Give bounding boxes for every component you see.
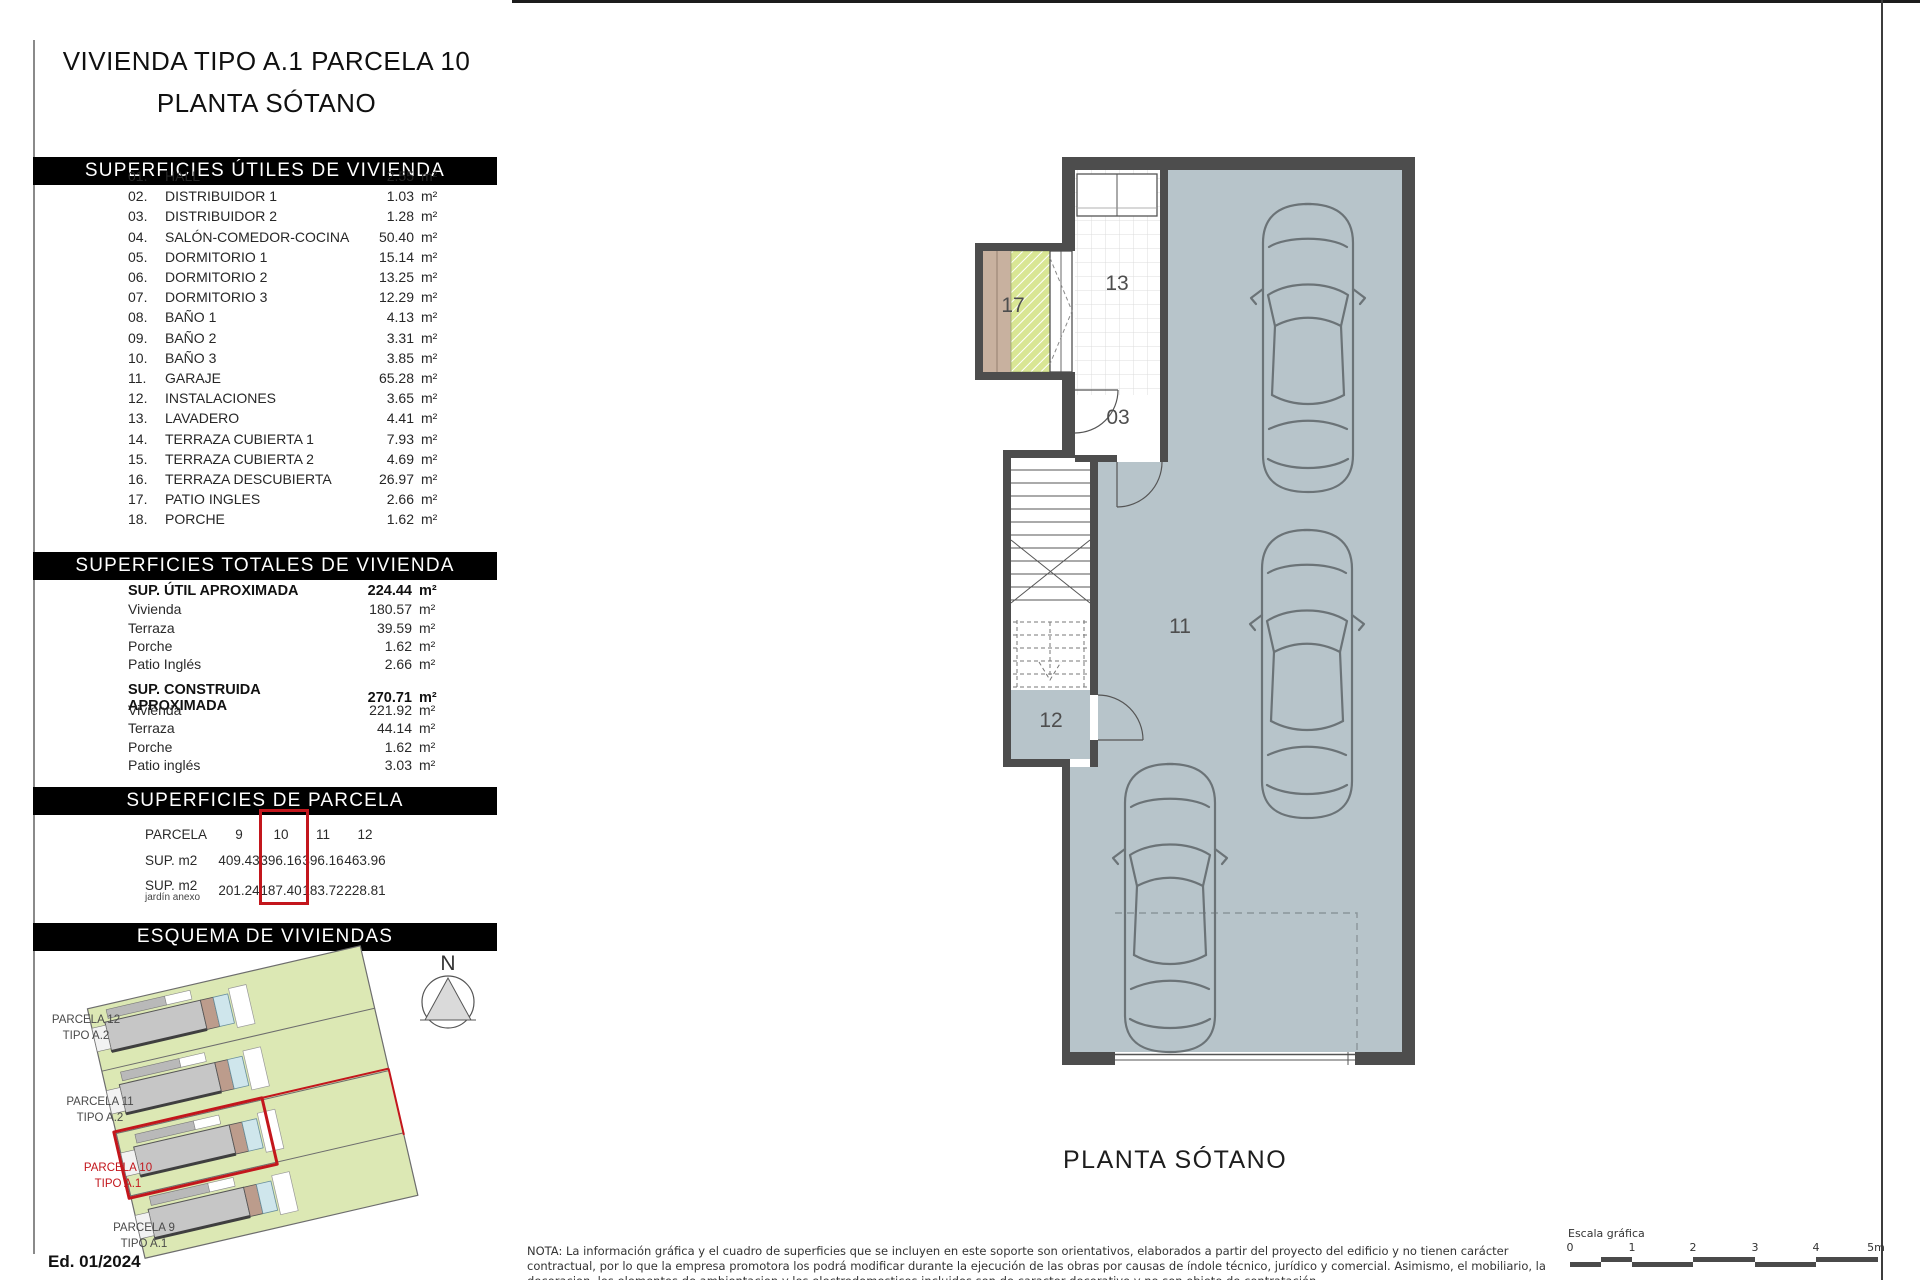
row-value: 4.41: [356, 410, 414, 426]
plan-sheet: VIVIENDA TIPO A.1 PARCELA 10 PLANTA SÓTA…: [0, 0, 1920, 1280]
row-unit: m²: [414, 309, 450, 325]
row-label: Vivienda: [128, 601, 340, 617]
scale-tick: 4: [1813, 1241, 1820, 1254]
parcel-name: PARCELA 12: [31, 1012, 141, 1028]
room-label-12: 12: [1039, 709, 1062, 732]
row-value: 1.62: [340, 638, 412, 654]
esquema-header: ESQUEMA DE VIVIENDAS: [33, 923, 497, 951]
row-label: INSTALACIONES: [165, 390, 356, 406]
table-row: 05.DORMITORIO 115.14m²: [128, 247, 450, 267]
row-label: Vivienda: [128, 702, 340, 718]
basement-floor-plan: 17 13 03 11 12: [965, 150, 1425, 1115]
scale-bars: [1568, 1257, 1884, 1269]
row-label: BAÑO 2: [165, 330, 356, 346]
sheet-title-line2: PLANTA SÓTANO: [33, 88, 500, 119]
row-value: 39.59: [340, 620, 412, 636]
row-unit: m²: [412, 620, 452, 636]
totals-group-head: SUP. CONSTRUIDA APROXIMADA270.71m²: [128, 682, 452, 700]
table-row: 12.INSTALACIONES3.65m²: [128, 388, 450, 408]
row-label: HALL: [165, 168, 356, 184]
table-row: 02.DISTRIBUIDOR 11.03m²: [128, 186, 450, 206]
totals-row: Terraza39.59m²: [128, 619, 452, 637]
table-row: 18.PORCHE1.62m²: [128, 509, 450, 529]
row-unit: m²: [414, 390, 450, 406]
highlighted-parcel-box: [259, 809, 309, 905]
row-unit: m²: [412, 739, 452, 755]
row-label: TERRAZA CUBIERTA 1: [165, 431, 356, 447]
row-value: 1.62: [340, 739, 412, 755]
panel-left-border: [33, 40, 35, 1254]
parcel-type: TIPO A.2: [45, 1110, 155, 1126]
row-value: 2.55: [356, 168, 414, 184]
parcel-type: TIPO A.2: [31, 1028, 141, 1044]
row-label: Porche: [128, 638, 340, 654]
scale-tick: 2: [1690, 1241, 1697, 1254]
row-unit: m²: [414, 350, 450, 366]
row-label: SUP. m2jardín anexo: [145, 878, 218, 903]
row-label: DORMITORIO 2: [165, 269, 356, 285]
room-label-03: 03: [1106, 406, 1129, 429]
parcel-name: PARCELA 9: [89, 1220, 199, 1236]
row-label: PATIO INGLES: [165, 491, 356, 507]
totals-row: Terraza44.14m²: [128, 719, 452, 737]
row-unit: m²: [414, 330, 450, 346]
totals-header: SUPERFICIES TOTALES DE VIVIENDA: [33, 552, 497, 580]
row-value: 12.29: [356, 289, 414, 305]
row-unit: m²: [414, 491, 450, 507]
row-number: 09.: [128, 330, 165, 346]
parcel10-label: PARCELA 10TIPO A.1: [63, 1160, 173, 1192]
row-number: 15.: [128, 451, 165, 467]
table-row: 03.DISTRIBUIDOR 21.28m²: [128, 206, 450, 226]
row-number: 10.: [128, 350, 165, 366]
scale-label: Escala gráfica: [1568, 1227, 1884, 1240]
sheet-right-border: [1881, 0, 1883, 1280]
scale-tick: 5m: [1867, 1241, 1885, 1254]
table-row: 04.SALÓN-COMEDOR-COCINA50.40m²: [128, 227, 450, 247]
table-row: 09.BAÑO 23.31m²: [128, 328, 450, 348]
row-unit: m²: [414, 269, 450, 285]
row-label: DISTRIBUIDOR 1: [165, 188, 356, 204]
row-number: 06.: [128, 269, 165, 285]
table-row: 11.GARAJE65.28m²: [128, 368, 450, 388]
parcel-type: TIPO A.1: [63, 1176, 173, 1192]
table-row: 13.LAVADERO4.41m²: [128, 408, 450, 428]
row-label: DORMITORIO 1: [165, 249, 356, 265]
north-compass-icon: N: [420, 952, 476, 1028]
totals-row: Porche1.62m²: [128, 737, 452, 755]
row-number: 08.: [128, 309, 165, 325]
row-number: 04.: [128, 229, 165, 245]
row-value: 1.62: [356, 511, 414, 527]
row-label: DISTRIBUIDOR 2: [165, 208, 356, 224]
row-value: 3.03: [340, 757, 412, 773]
totals-title: SUP. ÚTIL APROXIMADA: [128, 583, 340, 599]
row-unit: m²: [414, 451, 450, 467]
scale-tick: 0: [1567, 1241, 1574, 1254]
row-value: 1.28: [356, 208, 414, 224]
row-value: 44.14: [340, 720, 412, 736]
row-label-sub: jardín anexo: [145, 893, 218, 903]
row-unit: m²: [414, 188, 450, 204]
table-row: 10.BAÑO 33.85m²: [128, 348, 450, 368]
row-number: 03.: [128, 208, 165, 224]
row-number: 02.: [128, 188, 165, 204]
parcel11-label: PARCELA 11TIPO A.2: [45, 1094, 155, 1126]
cell: 228.81: [344, 883, 386, 898]
row-label-main: SUP. m2: [145, 878, 197, 893]
row-unit: m²: [414, 431, 450, 447]
row-number: 12.: [128, 390, 165, 406]
row-label: TERRAZA DESCUBIERTA: [165, 471, 356, 487]
scale-tick: 1: [1629, 1241, 1636, 1254]
row-unit: m²: [414, 208, 450, 224]
row-value: 3.65: [356, 390, 414, 406]
table-row: 16.TERRAZA DESCUBIERTA26.97m²: [128, 469, 450, 489]
row-unit: m²: [412, 601, 452, 617]
compass-north-letter: N: [440, 952, 455, 975]
parcel9-label: PARCELA 9TIPO A.1: [89, 1220, 199, 1252]
stairs-up: [1011, 470, 1090, 603]
row-value: 4.13: [356, 309, 414, 325]
row-label: PORCHE: [165, 511, 356, 527]
row-unit: m²: [414, 511, 450, 527]
parcel-name: PARCELA 11: [45, 1094, 155, 1110]
totals-section: SUP. ÚTIL APROXIMADA224.44m² Vivienda180…: [128, 582, 452, 774]
row-value: 221.92: [340, 702, 412, 718]
useful-areas-table: 01.HALL2.55m² 02.DISTRIBUIDOR 11.03m² 03…: [128, 166, 450, 529]
row-label: Patio inglés: [128, 757, 340, 773]
cell: 463.96: [344, 853, 386, 868]
row-unit: m²: [414, 229, 450, 245]
sheet-top-border: [512, 0, 1920, 3]
row-label: DORMITORIO 3: [165, 289, 356, 305]
totals-row: Porche1.62m²: [128, 637, 452, 655]
row-label: BAÑO 3: [165, 350, 356, 366]
row-value: 13.25: [356, 269, 414, 285]
row-unit: m²: [414, 249, 450, 265]
row-unit: m²: [412, 720, 452, 736]
sheet-title-line1: VIVIENDA TIPO A.1 PARCELA 10: [33, 46, 500, 77]
row-value: 2.66: [340, 656, 412, 672]
row-unit: m²: [414, 289, 450, 305]
row-value: 4.69: [356, 451, 414, 467]
row-value: 180.57: [340, 601, 412, 617]
table-row: 07.DORMITORIO 312.29m²: [128, 287, 450, 307]
row-unit: m²: [414, 410, 450, 426]
plan-caption: PLANTA SÓTANO: [1063, 1146, 1287, 1175]
row-unit: m²: [412, 638, 452, 654]
table-row: 08.BAÑO 14.13m²: [128, 307, 450, 327]
row-value: 26.97: [356, 471, 414, 487]
totals-row: Patio Inglés2.66m²: [128, 655, 452, 673]
row-label: SUP. m2: [145, 853, 218, 868]
scale-ticks: 0 1 2 3 4 5m: [1568, 1241, 1884, 1255]
garage-door: [1115, 1052, 1355, 1065]
row-number: 07.: [128, 289, 165, 305]
row-value: 1.03: [356, 188, 414, 204]
row-unit: m²: [412, 757, 452, 773]
row-label: TERRAZA CUBIERTA 2: [165, 451, 356, 467]
row-value: 3.31: [356, 330, 414, 346]
row-label: SALÓN-COMEDOR-COCINA: [165, 229, 356, 245]
totals-group-head: SUP. ÚTIL APROXIMADA224.44m²: [128, 582, 452, 600]
row-label: Terraza: [128, 720, 340, 736]
totals-row: Vivienda180.57m²: [128, 600, 452, 618]
totals-row: Vivienda221.92m²: [128, 701, 452, 719]
row-unit: m²: [414, 168, 450, 184]
room-label-11: 11: [1169, 615, 1191, 638]
row-label: GARAJE: [165, 370, 356, 386]
row-label: BAÑO 1: [165, 309, 356, 325]
row-number: 13.: [128, 410, 165, 426]
cell: 409.43: [218, 853, 260, 868]
parcel-col: 12: [344, 827, 386, 842]
parcel-name: PARCELA 10: [63, 1160, 173, 1176]
parcel-type: TIPO A.1: [89, 1236, 199, 1252]
row-unit: m²: [412, 702, 452, 718]
graphic-scale: Escala gráfica 0 1 2 3 4 5m: [1568, 1227, 1884, 1269]
scale-tick: 3: [1752, 1241, 1759, 1254]
row-number: 01.: [128, 168, 165, 184]
totals-value: 224.44: [340, 583, 412, 599]
totals-row: Patio inglés3.03m²: [128, 756, 452, 774]
edition-stamp: Ed. 01/2024: [48, 1252, 141, 1272]
row-number: 16.: [128, 471, 165, 487]
legal-note: NOTA: La información gráfica y el cuadro…: [527, 1244, 1559, 1280]
row-number: 18.: [128, 511, 165, 527]
row-unit: m²: [412, 656, 452, 672]
row-value: 65.28: [356, 370, 414, 386]
row-number: 17.: [128, 491, 165, 507]
parcel12-label: PARCELA 12TIPO A.2: [31, 1012, 141, 1044]
row-value: 3.85: [356, 350, 414, 366]
row-unit: m²: [414, 471, 450, 487]
row-label: Terraza: [128, 620, 340, 636]
row-unit: m²: [414, 370, 450, 386]
row-number: 05.: [128, 249, 165, 265]
row-label: PARCELA: [145, 827, 218, 842]
row-label: Patio Inglés: [128, 656, 340, 672]
cell: 201.24: [218, 883, 260, 898]
row-number: 11.: [128, 370, 165, 386]
room-label-17: 17: [1001, 294, 1024, 317]
table-row: 06.DORMITORIO 213.25m²: [128, 267, 450, 287]
totals-unit: m²: [412, 583, 452, 599]
table-row: 14.TERRAZA CUBIERTA 17.93m²: [128, 428, 450, 448]
stairs-dashed: [1013, 620, 1088, 690]
row-value: 2.66: [356, 491, 414, 507]
row-label: Porche: [128, 739, 340, 755]
table-row: 01.HALL2.55m²: [128, 166, 450, 186]
row-number: 14.: [128, 431, 165, 447]
table-row: 15.TERRAZA CUBIERTA 24.69m²: [128, 449, 450, 469]
row-value: 50.40: [356, 229, 414, 245]
parcel-col: 9: [218, 827, 260, 842]
row-value: 7.93: [356, 431, 414, 447]
row-value: 15.14: [356, 249, 414, 265]
table-row: 17.PATIO INGLES2.66m²: [128, 489, 450, 509]
row-label: LAVADERO: [165, 410, 356, 426]
room-label-13: 13: [1105, 272, 1128, 295]
